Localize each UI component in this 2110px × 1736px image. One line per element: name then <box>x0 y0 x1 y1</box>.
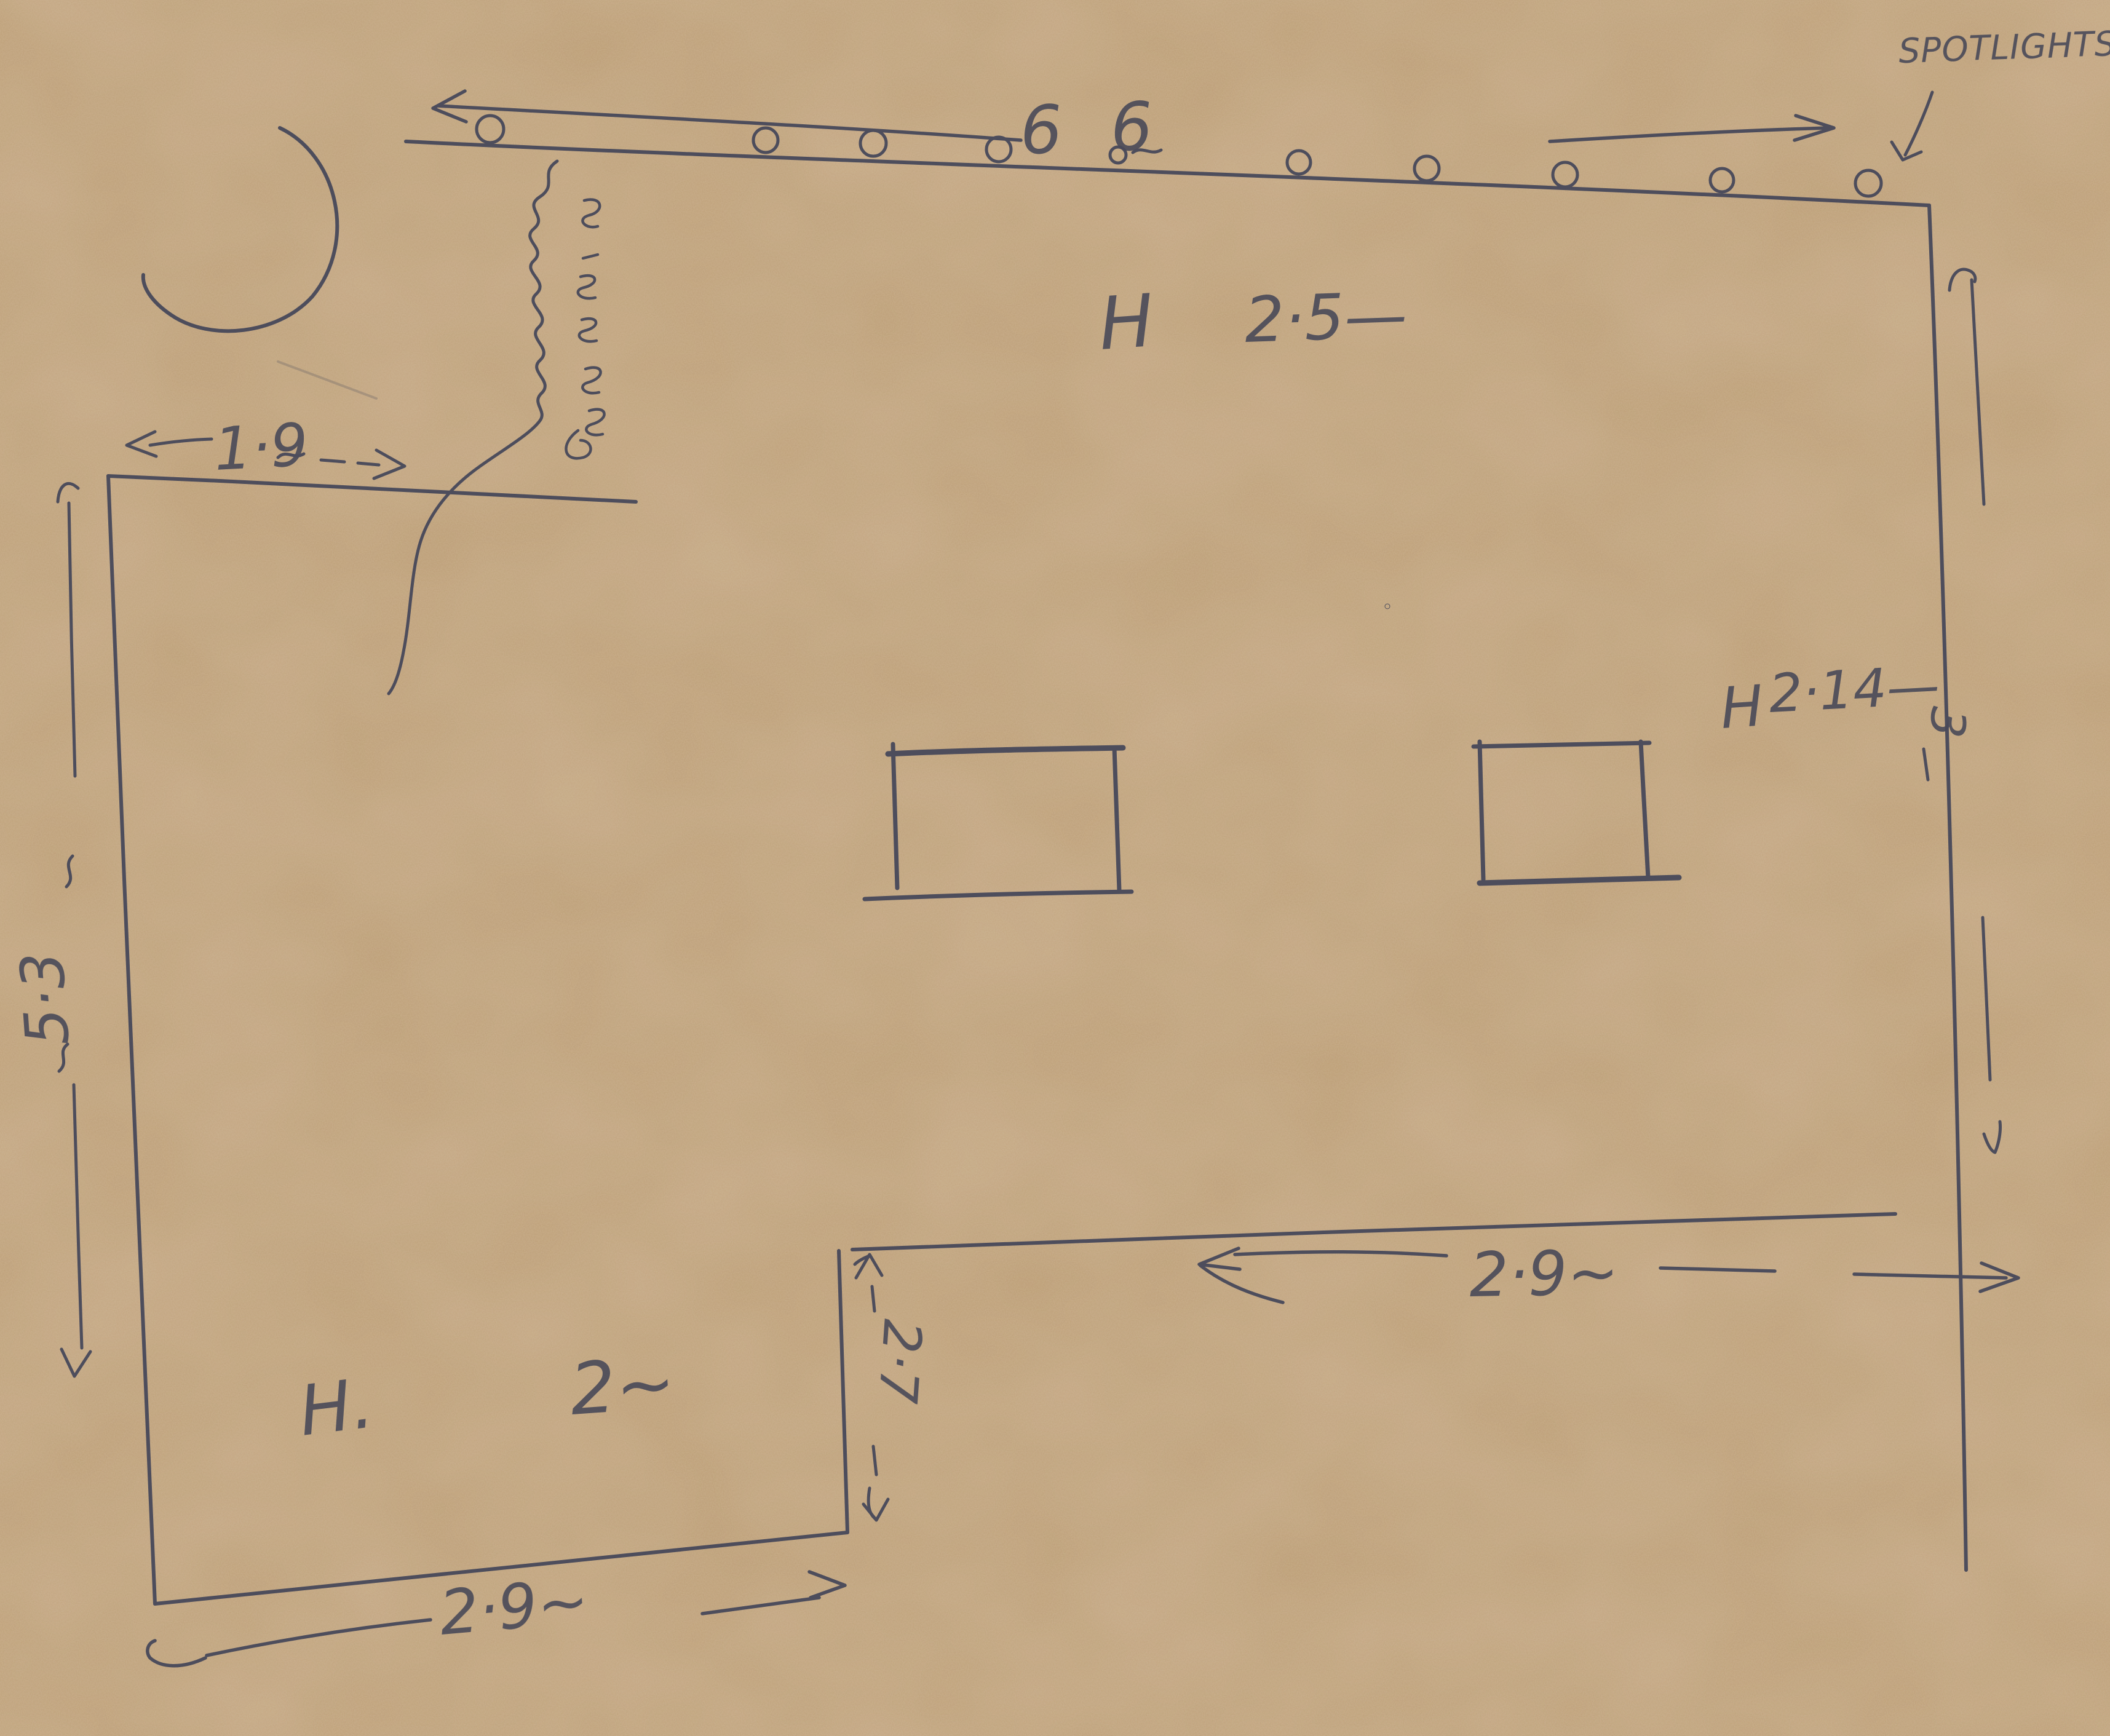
top-left-width-label: 1·9 <box>212 410 309 484</box>
floor-plan-sketch: 6 6 SPOTLIGHTS H 2·5— 3 H 2·14— <box>0 0 2110 1736</box>
height-right-value: 2·14— <box>1767 655 1941 725</box>
mid-width-label: 2·9~ <box>1469 1237 1619 1311</box>
height-top-value: 2·5— <box>1243 279 1408 357</box>
track-count-label: 6 6 <box>1019 88 1168 170</box>
paper-tint <box>0 0 2110 1736</box>
dim19-dash1 <box>321 460 344 462</box>
height-top-prefix: H <box>1096 278 1156 367</box>
height-left-room-prefix: H. <box>295 1363 378 1452</box>
height-left-room-value: 2~ <box>568 1341 678 1432</box>
spotlights-label: SPOTLIGHTS <box>1898 24 2110 71</box>
height-right-prefix: H <box>1718 673 1765 742</box>
step-depth-label: 2·7 <box>866 1317 933 1405</box>
left-span-label: 5·3 <box>7 949 82 1048</box>
bottom-width-label: 2·9~ <box>437 1564 592 1649</box>
photo-of-sketch: 6 6 SPOTLIGHTS H 2·5— 3 H 2·14— <box>0 0 2110 1736</box>
dim19-dash2 <box>358 463 379 465</box>
